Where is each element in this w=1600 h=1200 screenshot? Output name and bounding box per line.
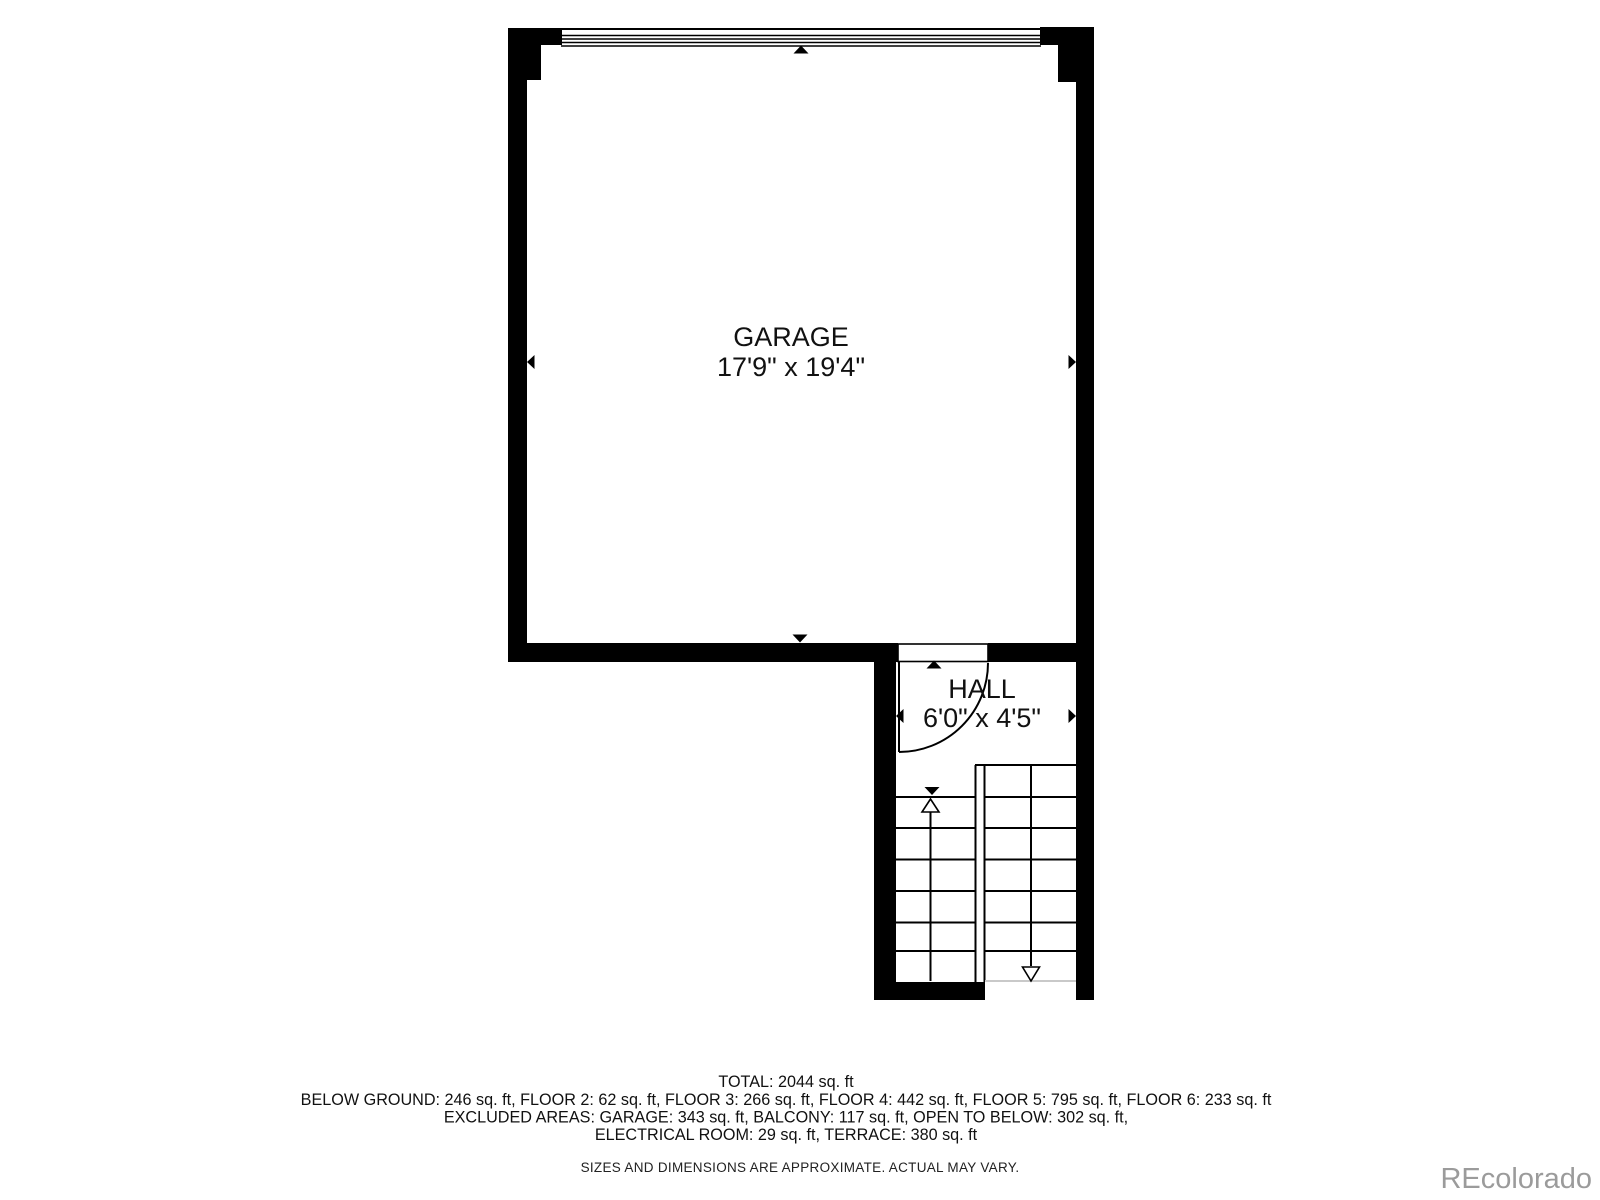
bottom-wall	[874, 982, 985, 1000]
down-arrow-head-icon	[1023, 967, 1040, 981]
excluded-areas-line-2: ELECTRICAL ROOM: 29 sq. ft, TERRACE: 380…	[595, 1126, 978, 1144]
walls	[508, 27, 1094, 1000]
up-arrow-head-icon	[922, 799, 939, 812]
excluded-areas-line-1: EXCLUDED AREAS: GARAGE: 343 sq. ft, BALC…	[444, 1109, 1128, 1127]
garage-door	[561, 29, 1041, 46]
garage-bottom-marker-icon	[793, 635, 808, 643]
hall-dimensions: 6'0" x 4'5"	[923, 703, 1041, 733]
stair-divider	[976, 765, 985, 982]
garage-left-wall	[508, 28, 527, 662]
floor-plan-page: GARAGE 17'9" x 19'4" HALL 6'0" x 4'5" TO…	[0, 0, 1600, 1200]
garage-top-left-pier	[508, 28, 541, 80]
total-area-line: TOTAL: 2044 sq. ft	[718, 1073, 854, 1091]
stair-flight-up	[896, 797, 975, 951]
hall-right-marker-icon	[1069, 709, 1077, 723]
disclaimer-line: SIZES AND DIMENSIONS ARE APPROXIMATE. AC…	[581, 1160, 1020, 1175]
garage-bottom-wall-right	[988, 643, 1076, 662]
hall-left-wall	[874, 643, 896, 982]
garage-dimensions: 17'9" x 19'4"	[717, 352, 865, 382]
right-wall	[1076, 27, 1094, 1000]
door-opening	[898, 644, 988, 662]
hall-label: HALL	[948, 674, 1016, 704]
staircase	[896, 765, 1076, 982]
garage-left-marker-icon	[527, 355, 535, 369]
garage-bottom-wall-left	[508, 643, 898, 662]
floors-area-line: BELOW GROUND: 246 sq. ft, FLOOR 2: 62 sq…	[301, 1091, 1272, 1109]
garage-right-marker-icon	[1069, 355, 1077, 369]
area-summary: TOTAL: 2044 sq. ft BELOW GROUND: 246 sq.…	[301, 1073, 1272, 1175]
recolorado-watermark: REcolorado	[1440, 1163, 1592, 1195]
floor-plan-canvas: GARAGE 17'9" x 19'4" HALL 6'0" x 4'5" TO…	[0, 0, 1600, 1200]
stair-entry-marker-icon	[925, 787, 940, 795]
garage-label: GARAGE	[733, 322, 849, 352]
stair-flight-down	[975, 765, 1076, 981]
